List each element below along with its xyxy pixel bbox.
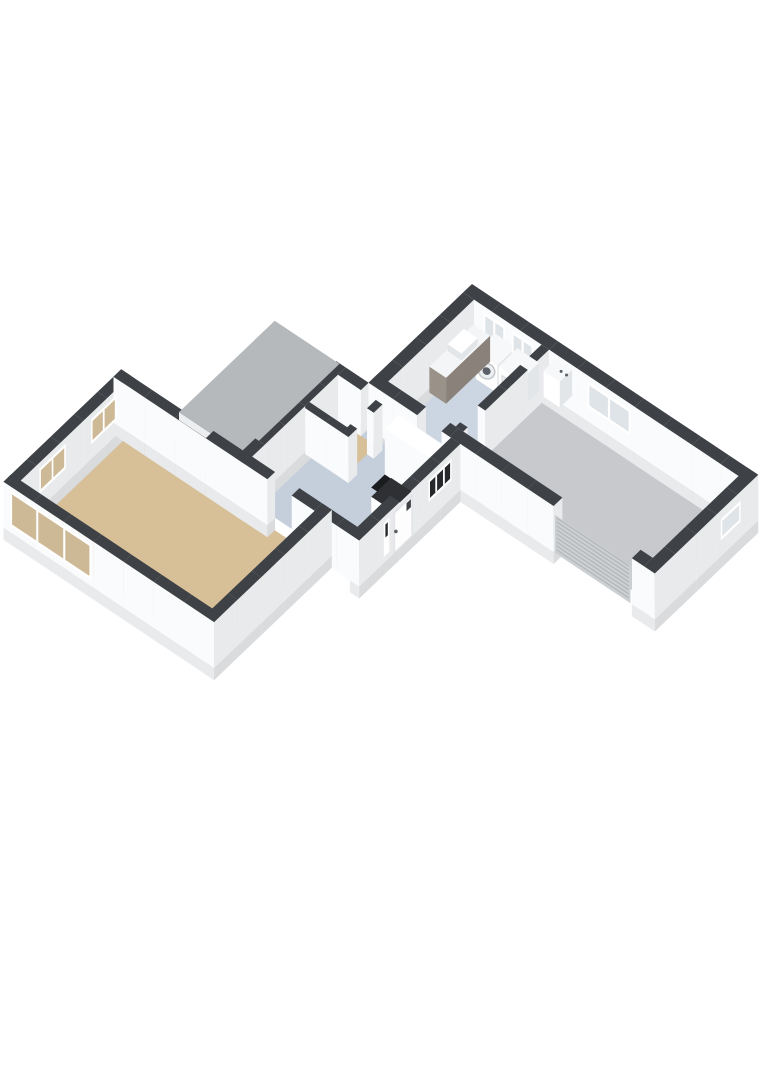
floorplan-stage xyxy=(0,0,764,1080)
page: { "scene": {"width": 764, "height": 1080… xyxy=(0,0,764,1080)
floor-plan-svg xyxy=(0,0,764,1080)
toilet-se-wall-seg0 xyxy=(367,400,383,459)
door-sidelight xyxy=(384,518,390,557)
